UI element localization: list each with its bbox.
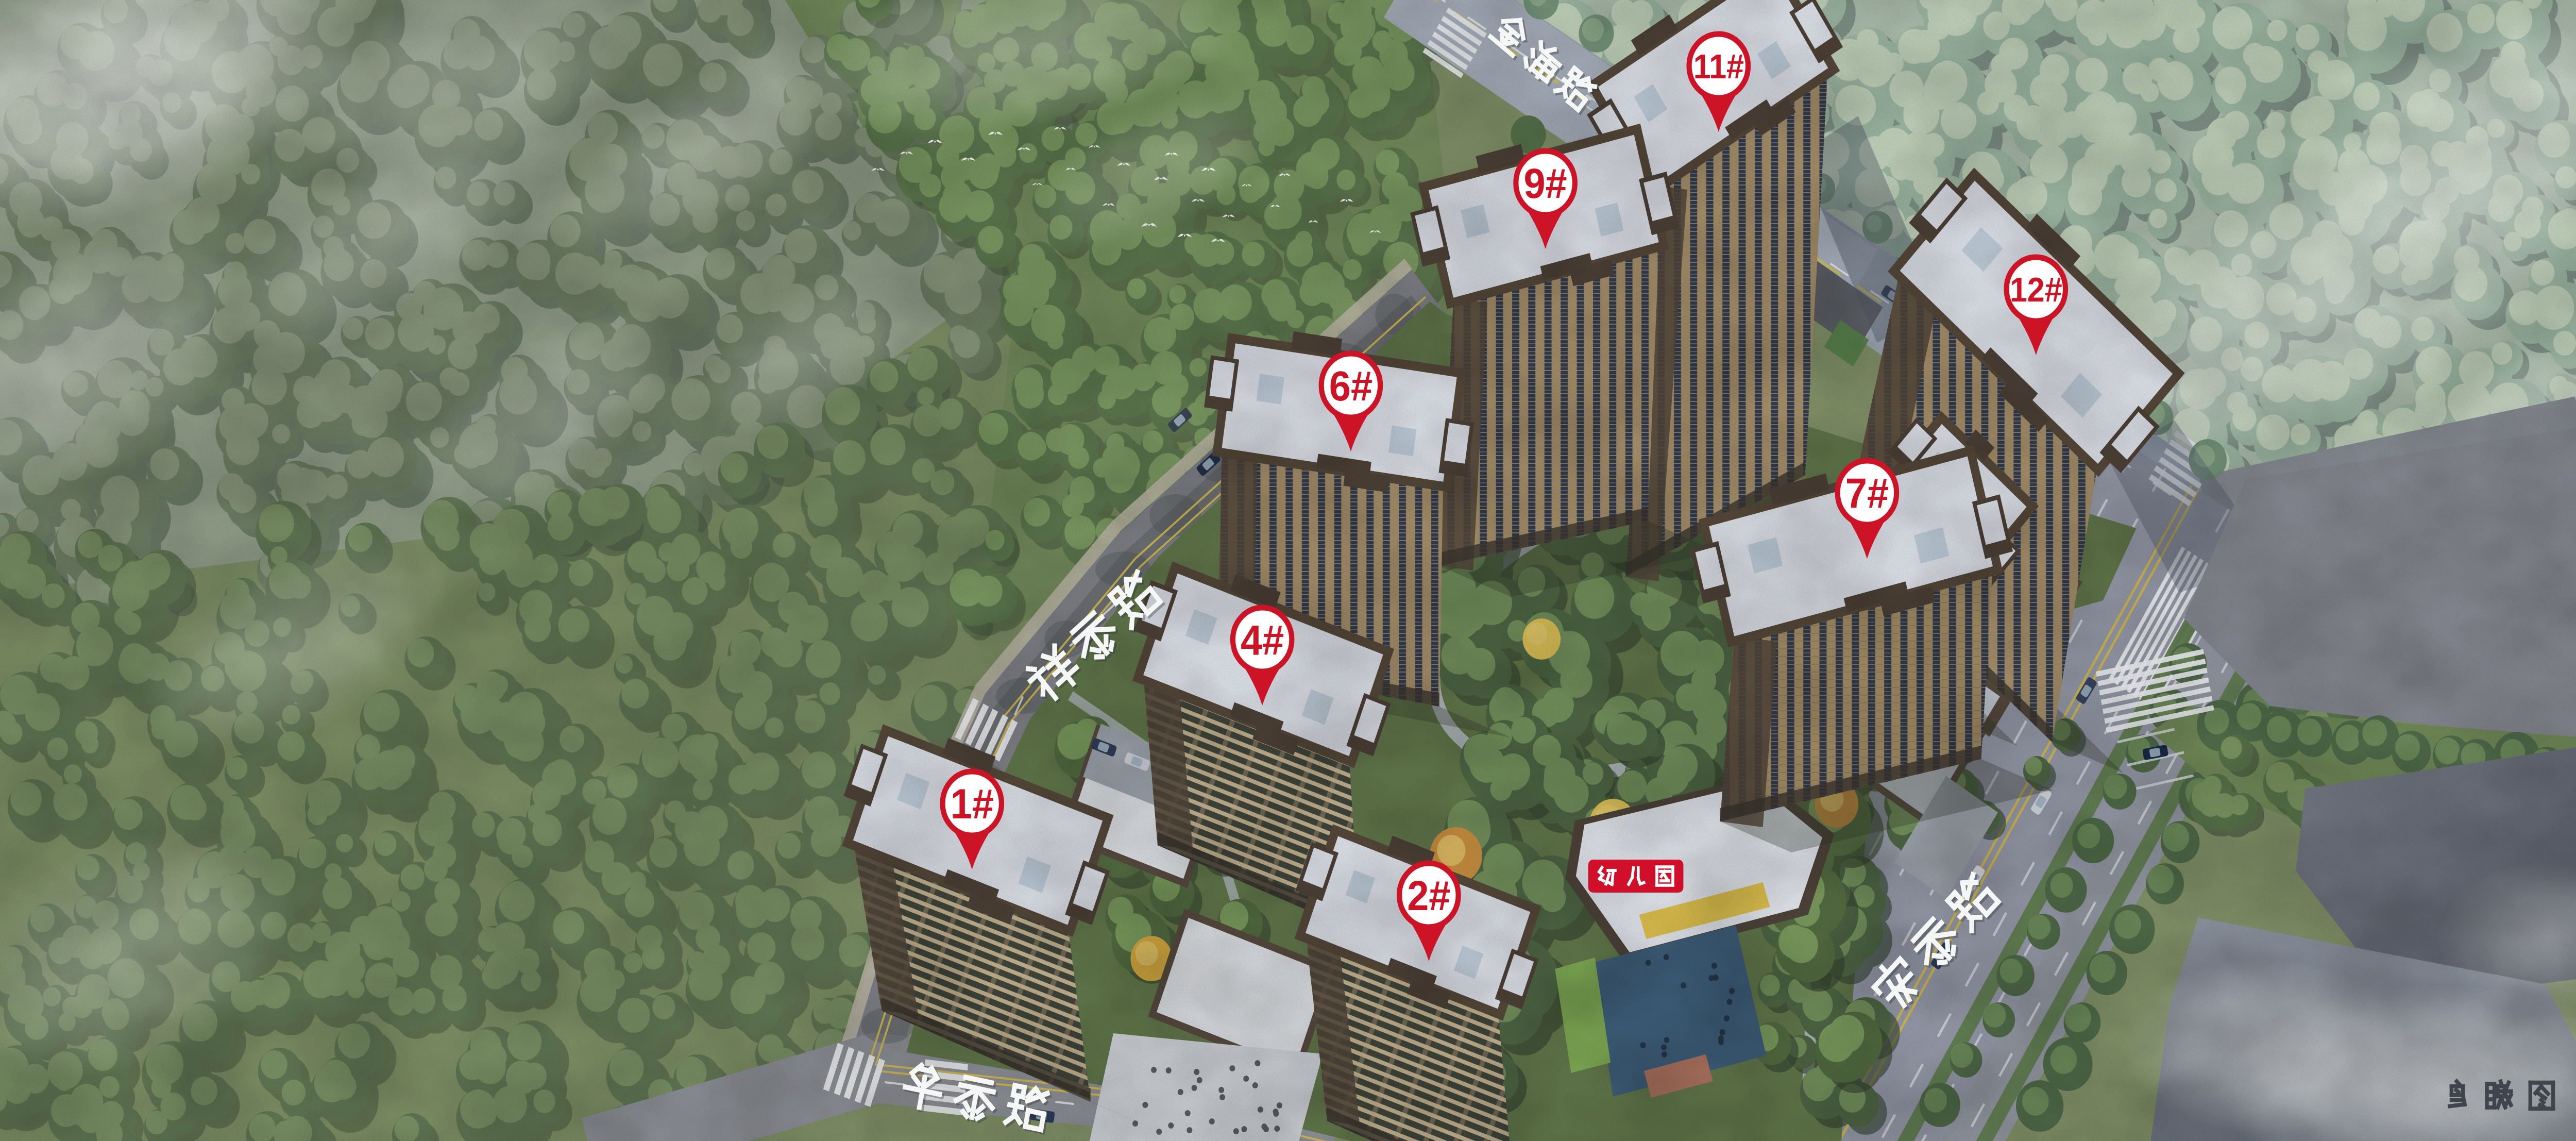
- svg-text:4#: 4#: [1241, 616, 1284, 663]
- svg-text:7#: 7#: [1845, 469, 1889, 516]
- svg-text:9#: 9#: [1524, 160, 1567, 207]
- svg-text:1#: 1#: [951, 780, 994, 827]
- svg-text:2#: 2#: [1407, 872, 1450, 919]
- svg-text:6#: 6#: [1329, 362, 1372, 409]
- svg-text:12#: 12#: [2010, 271, 2062, 309]
- svg-text:11#: 11#: [1693, 47, 1744, 86]
